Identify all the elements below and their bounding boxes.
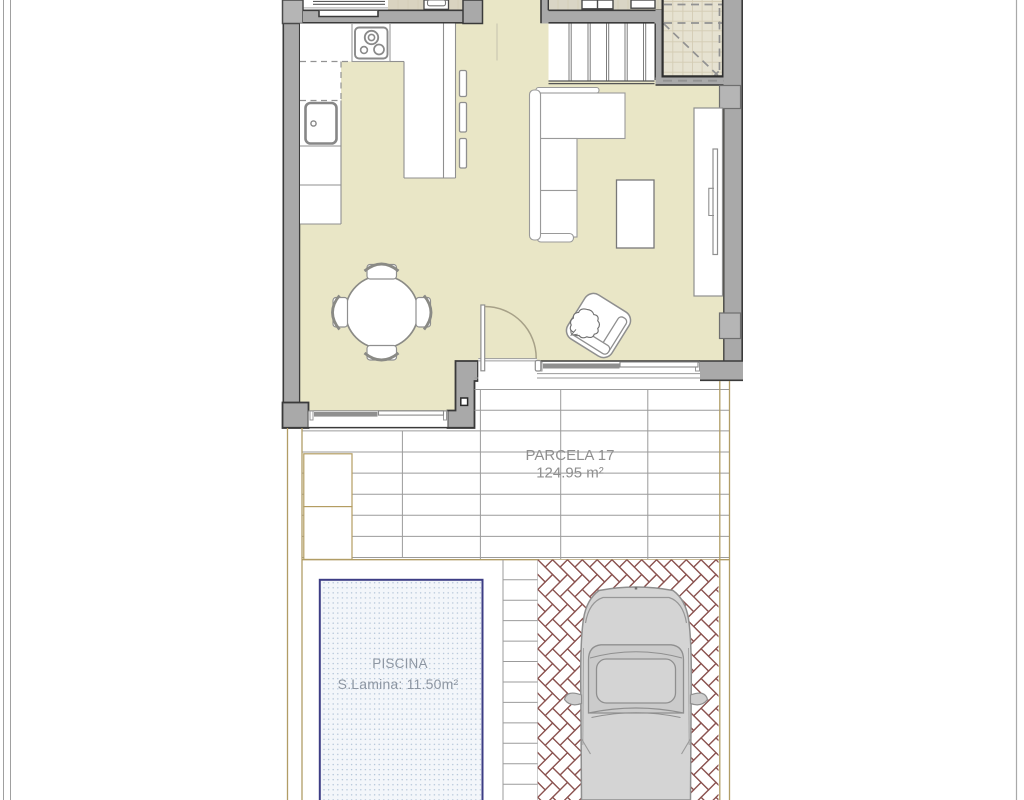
svg-text:124.95 m²: 124.95 m² (536, 465, 604, 482)
svg-text:PARCELA 17: PARCELA 17 (526, 447, 615, 464)
svg-text:S.Lamina: 11.50m²: S.Lamina: 11.50m² (338, 676, 459, 692)
svg-text:PISCINA: PISCINA (372, 656, 427, 671)
